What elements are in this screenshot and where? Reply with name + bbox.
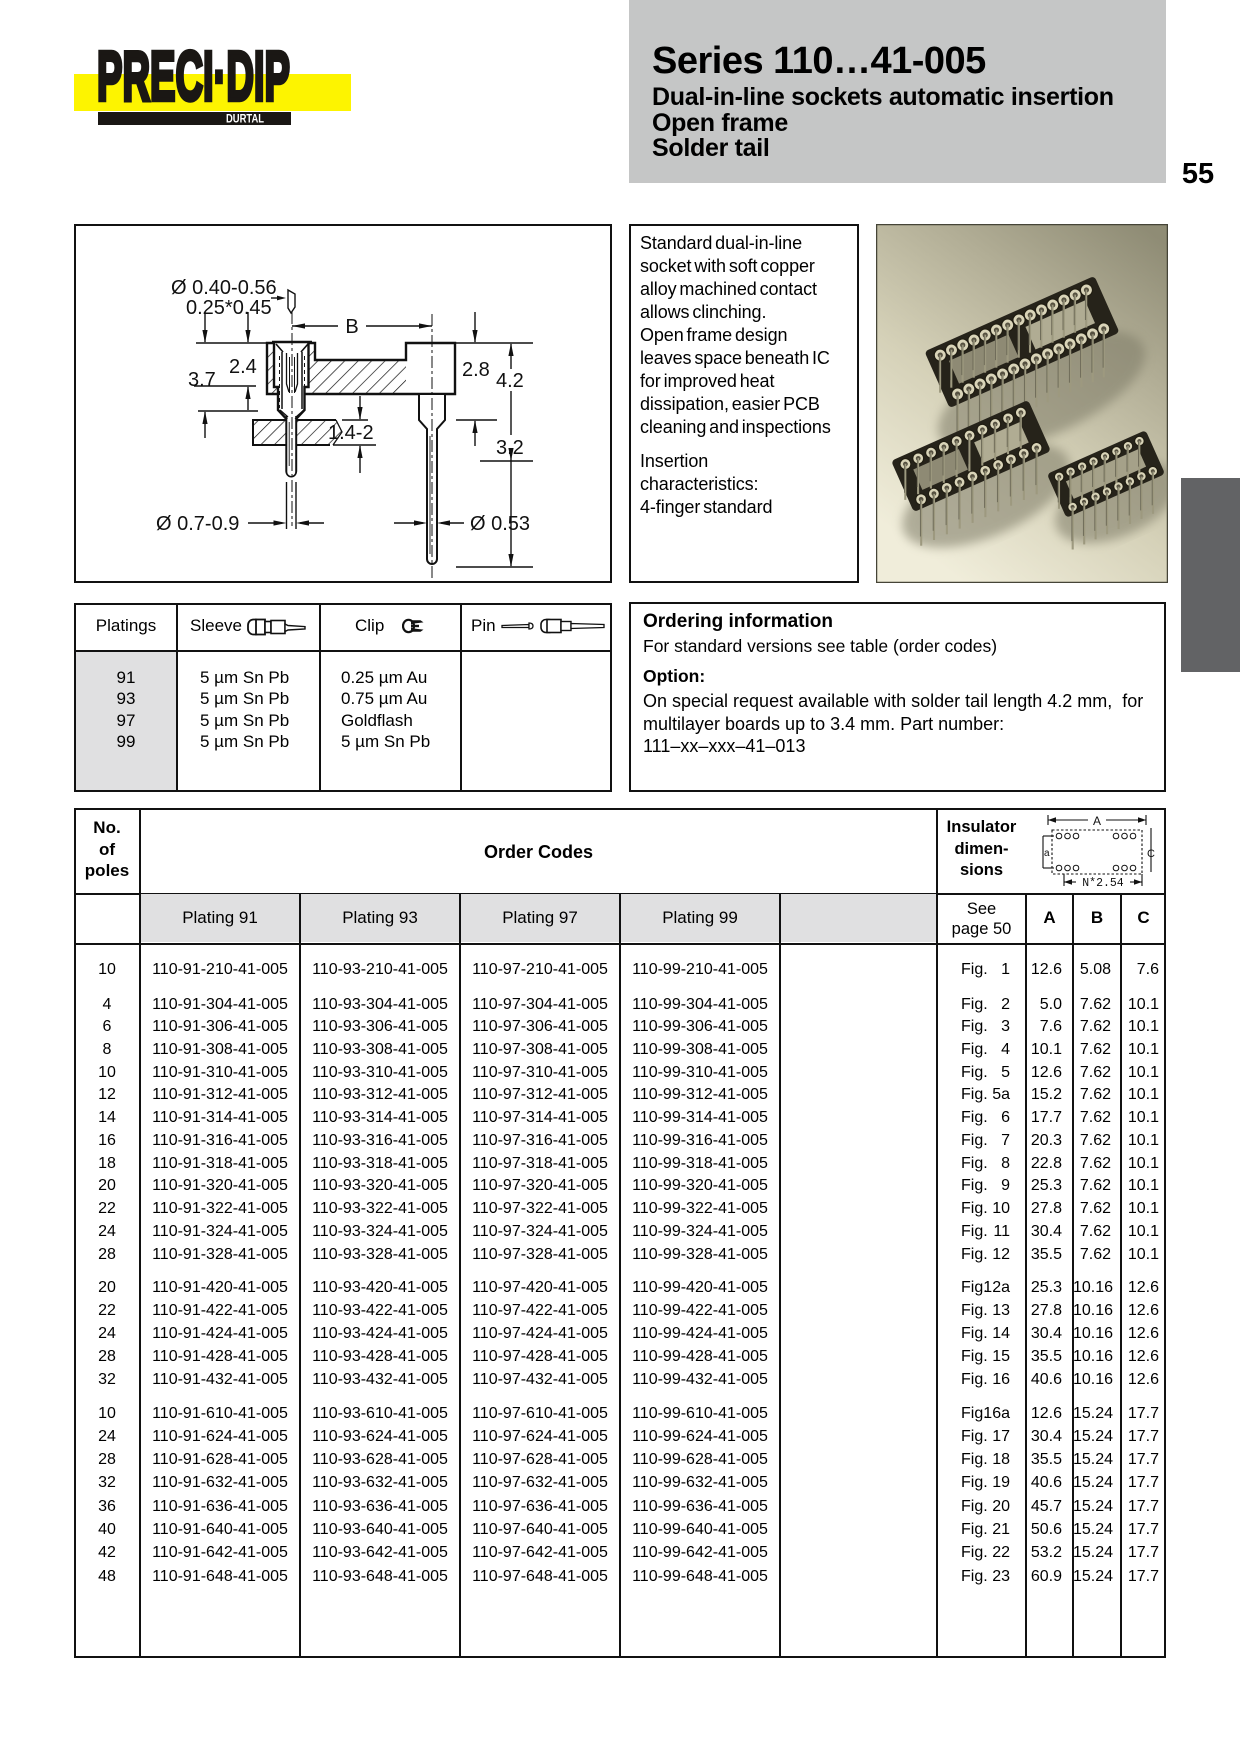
svg-text:a: a — [1044, 848, 1050, 859]
svg-text:N*2.54: N*2.54 — [1082, 877, 1124, 890]
svg-text:A: A — [1093, 814, 1101, 828]
svg-text:C: C — [1147, 848, 1155, 860]
